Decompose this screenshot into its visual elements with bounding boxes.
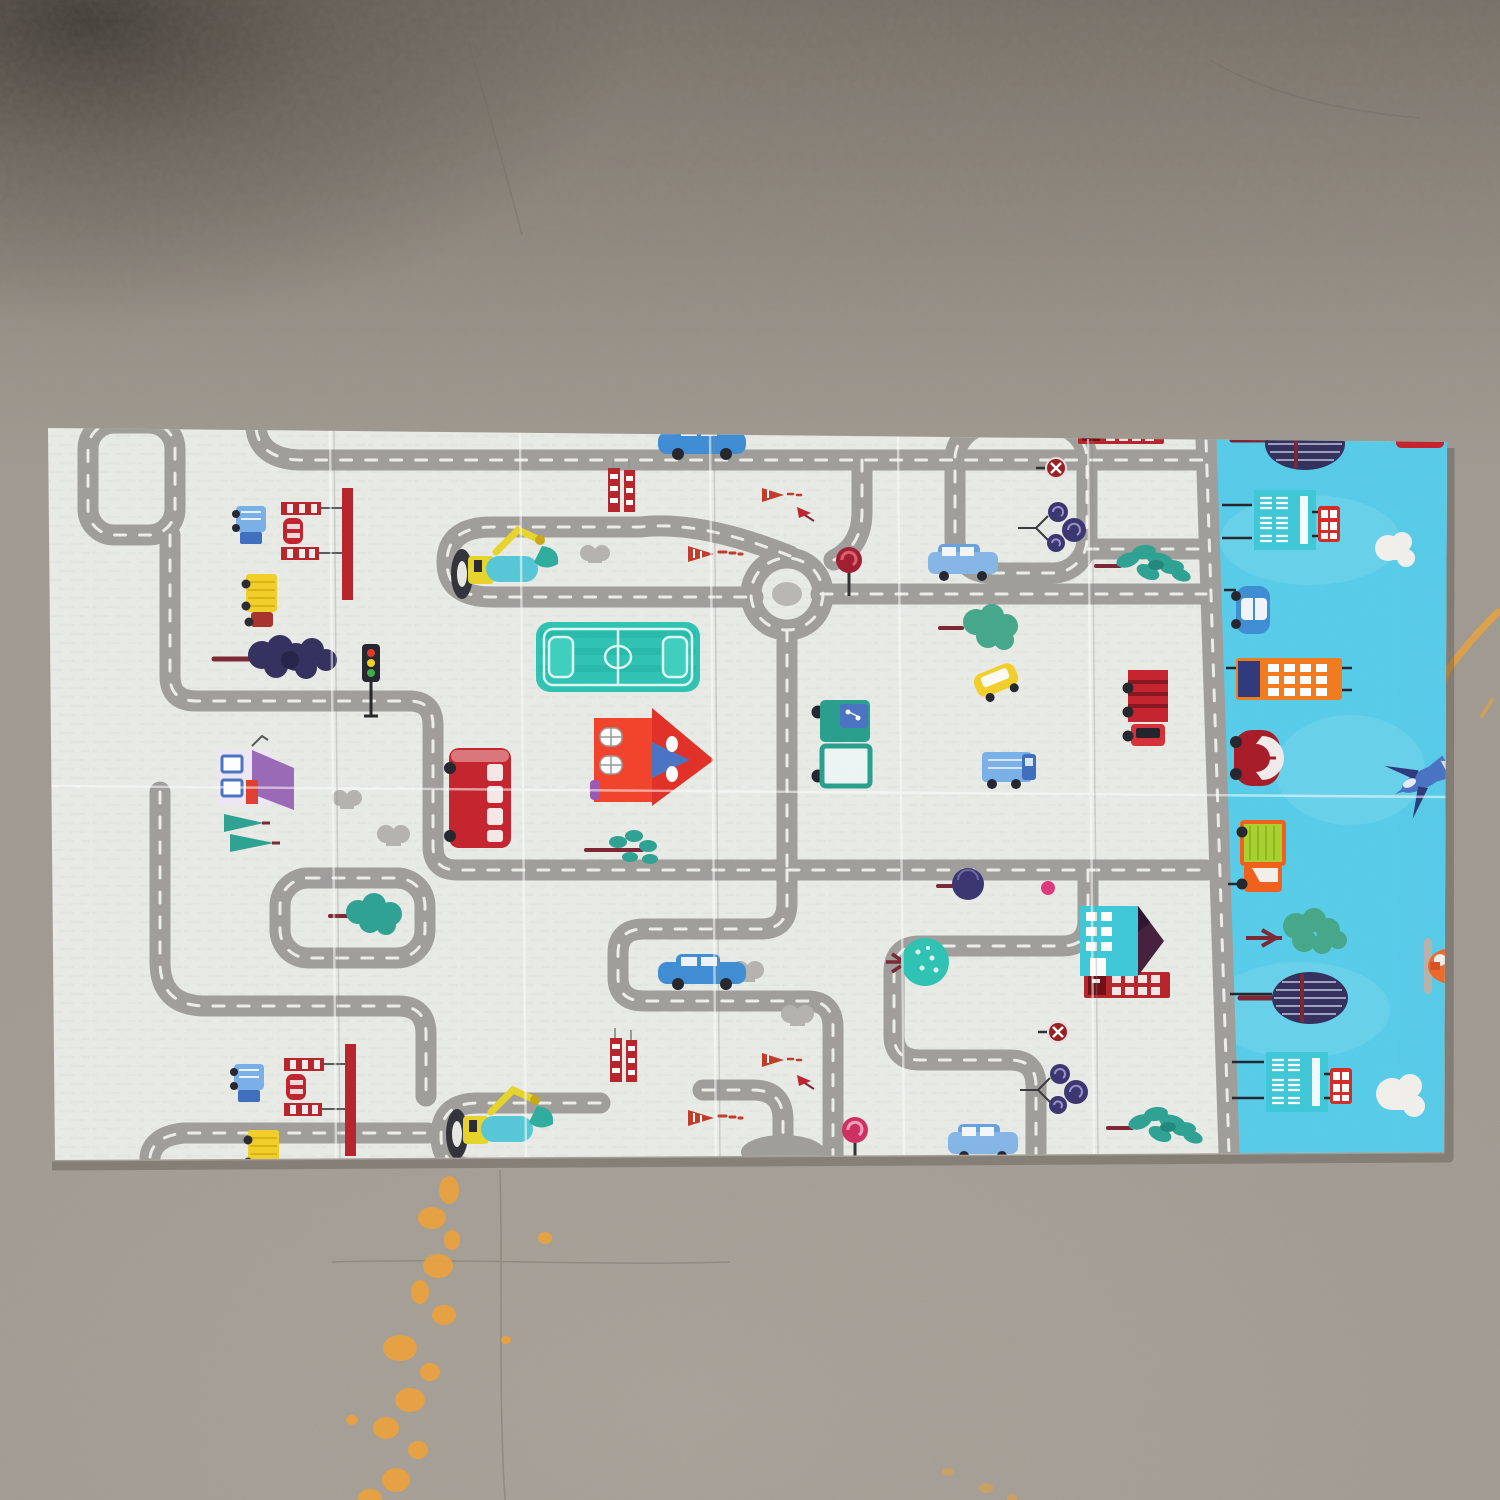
- photo-stage: [0, 0, 1500, 1500]
- mat-grain: [40, 420, 1455, 1168]
- play-mat: [40, 418, 1476, 1183]
- play-mat-photo: [0, 0, 1500, 1500]
